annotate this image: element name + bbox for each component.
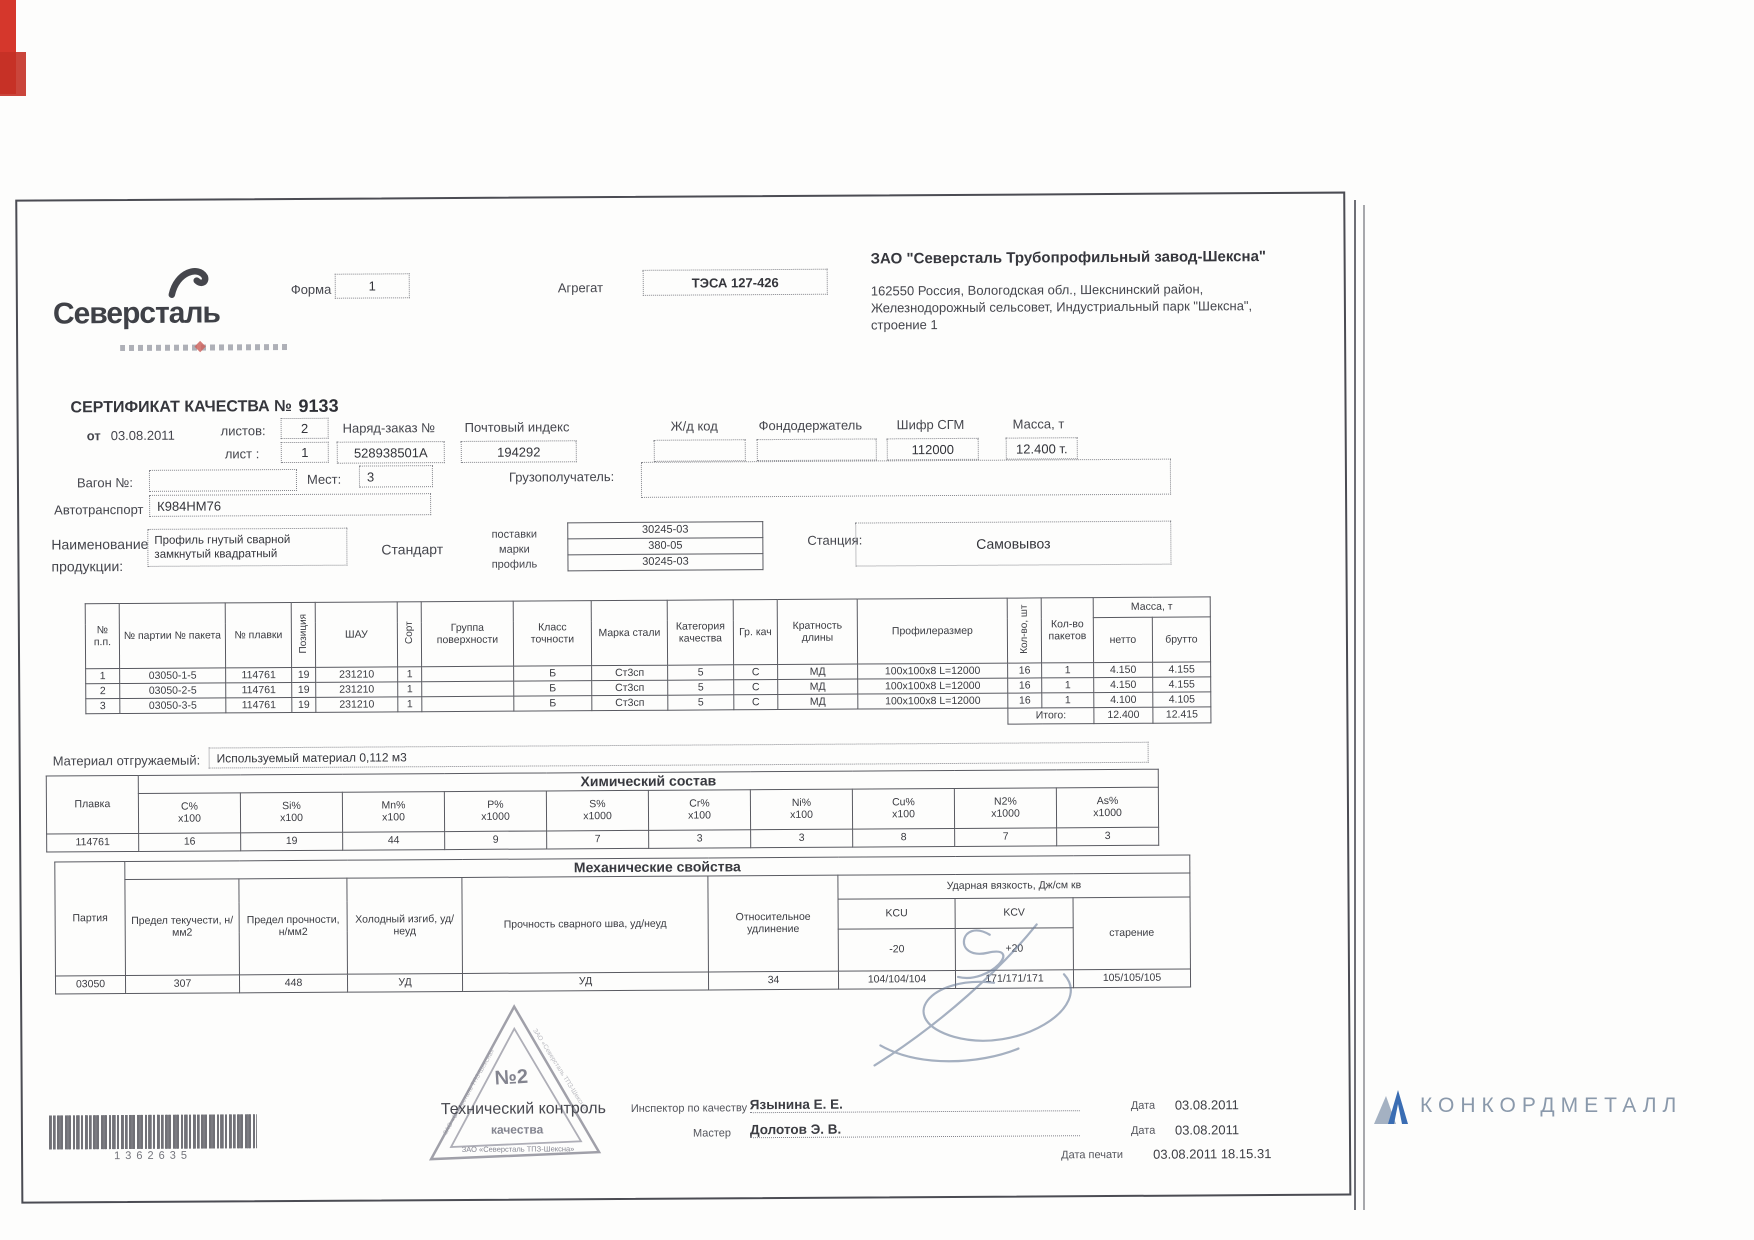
- cell: 3: [649, 829, 751, 848]
- chem-col-P: P%х1000: [444, 790, 546, 831]
- cell: 03050-2-5: [120, 683, 226, 699]
- cell: 16: [1008, 693, 1042, 708]
- cell: 16: [1008, 663, 1042, 678]
- cell: 1: [86, 669, 120, 684]
- cell: 03050-1-5: [120, 668, 226, 684]
- cell: 5: [668, 680, 734, 695]
- document-body: Северсталь Форма 1 Агрегат ТЭСА 127-426 …: [0, 0, 1754, 1240]
- cell: 4.155: [1153, 662, 1211, 677]
- sgm-value-box: 112000: [887, 438, 979, 461]
- cell: 44: [343, 831, 445, 850]
- standard-row-label-profile: профиль: [471, 557, 557, 573]
- cell: 3: [751, 829, 853, 848]
- stamp-ring-text-bottom: ЗАО «Северсталь ТПЗ-Шексна»: [441, 1144, 595, 1154]
- cell: 5: [668, 665, 734, 680]
- product-value-box: Профиль гнутый сварной замкнутый квадрат…: [147, 528, 347, 567]
- sgm-label: Шифр СГМ: [897, 417, 965, 432]
- cell: 448: [239, 974, 347, 993]
- cell: 4.155: [1153, 677, 1211, 692]
- barcode-bars: [49, 1114, 257, 1149]
- col-header-batch: № партии № пакета: [119, 603, 225, 669]
- cell: 5: [668, 695, 734, 710]
- cell: 19: [292, 697, 316, 712]
- chem-col-C: C%х100: [138, 792, 240, 833]
- consignee-label: Грузополучатель:: [509, 469, 614, 485]
- cell: Ст3сп: [592, 665, 668, 680]
- cell: 231210: [316, 667, 398, 683]
- date-label-1: Дата: [1131, 1100, 1155, 1112]
- aggregate-label: Агрегат: [558, 280, 603, 295]
- company-address-line3: строение 1: [871, 314, 1252, 333]
- stamp-caption-line2: качества: [491, 1122, 543, 1136]
- fundholder-label: Фондодержатель: [759, 418, 863, 434]
- cell: 1: [1042, 693, 1094, 708]
- standard-row-label-delivery: поставки: [471, 527, 557, 543]
- cell: 16: [139, 832, 241, 851]
- chem-col-S: S%х1000: [546, 790, 648, 831]
- material-label: Материал отгружаемый:: [53, 753, 201, 769]
- cell: 1: [1042, 663, 1094, 678]
- cell: Б: [514, 696, 592, 711]
- handwritten-signature: [832, 912, 1133, 1094]
- cell: 231210: [316, 697, 398, 713]
- col-header-position: Позиция: [291, 602, 315, 667]
- cell: 3: [1057, 827, 1159, 846]
- print-date-label: Дата печати: [1061, 1149, 1123, 1161]
- cell: 8: [853, 828, 955, 847]
- stamp-caption-line1: Технический контроль: [441, 1100, 606, 1119]
- chem-col-Cr: Cr%х100: [648, 789, 750, 830]
- cell: 16: [1008, 678, 1042, 693]
- sheets-value-box: 2: [281, 418, 329, 439]
- barcode-number: 1362635: [49, 1149, 257, 1162]
- company-address-line2: Железнодорожный сельсовет, Индустриальны…: [871, 297, 1252, 316]
- date-value: 03.08.2011: [111, 428, 175, 443]
- date-label-2: Дата: [1131, 1125, 1155, 1137]
- cell: МД: [778, 694, 858, 709]
- cell: [422, 681, 514, 697]
- railcode-value-box: [654, 439, 746, 462]
- mechanics-party-value: 03050: [55, 975, 125, 993]
- cell: Б: [514, 666, 592, 681]
- sheet-value-box: 1: [281, 442, 329, 463]
- order-value-box: 528938501А: [337, 441, 445, 464]
- product-label-line1: Наименование: [51, 536, 148, 553]
- cell: 03050-3-5: [120, 698, 226, 714]
- chemistry-melt-value: 114761: [47, 833, 139, 852]
- chem-col-As: As%х1000: [1056, 787, 1158, 828]
- col-header-shau: ШАУ: [315, 602, 397, 667]
- aggregate-value-box: ТЭСА 127-426: [643, 269, 828, 296]
- cell: 19: [241, 832, 343, 851]
- cell: 1: [1042, 678, 1094, 693]
- cell: 2: [86, 684, 120, 699]
- cell: 100х100х8 L=12000: [858, 693, 1008, 709]
- certificate-title: СЕРТИФИКАТ КАЧЕСТВА №: [70, 398, 292, 417]
- col-header-gross: брутто: [1152, 617, 1210, 662]
- col-header-surface-group: Группа поверхности: [421, 601, 513, 667]
- company-address: 162550 Россия, Вологодская обл., Шекснин…: [871, 280, 1253, 333]
- cell: 114761: [226, 668, 292, 683]
- cell: 9: [445, 830, 547, 849]
- cell: 1: [398, 697, 422, 712]
- consignee-value-box: [641, 459, 1171, 498]
- col-header-sort: Сорт: [397, 602, 421, 667]
- standard-row-label-grade: марки: [471, 542, 557, 558]
- standard-label: Стандарт: [381, 541, 443, 557]
- cell: 7: [547, 830, 649, 849]
- order-label: Наряд-заказ №: [343, 420, 436, 436]
- col-header-melt: № плавки: [225, 603, 291, 668]
- inspector-name: Язынина Е. Е.: [750, 1095, 1080, 1113]
- logo-tagline: [120, 344, 288, 351]
- date-value-2: 03.08.2011: [1175, 1122, 1239, 1137]
- product-value-line1: Профиль гнутый сварной: [154, 533, 290, 548]
- scanned-quality-certificate: Северсталь Форма 1 Агрегат ТЭСА 127-426 …: [0, 0, 1754, 1240]
- cell: Ст3сп: [592, 695, 668, 710]
- cell: МД: [778, 664, 858, 679]
- cell: МД: [778, 679, 858, 694]
- places-value-box: 3: [359, 465, 433, 487]
- col-header-quality-group: Гр. кач: [733, 600, 777, 665]
- cell: 19: [292, 682, 316, 697]
- standard-row-labels: поставки марки профиль: [471, 527, 557, 573]
- cell: 4.100: [1094, 692, 1153, 707]
- standard-value-profile: 30245-03: [568, 554, 763, 571]
- station-value-box: Самовывоз: [855, 521, 1171, 567]
- col-header-qty-pcs: Кол-во, шт: [1007, 598, 1041, 663]
- wagon-value-box: [149, 469, 297, 492]
- products-table: № п.п. № партии № пакета № плавки Позици…: [85, 596, 1212, 730]
- postcode-label: Почтовый индекс: [465, 419, 570, 435]
- master-name: Долотов Э. В.: [750, 1120, 1080, 1138]
- sheet-label: лист :: [225, 446, 260, 461]
- col-header-net: нетто: [1093, 617, 1152, 662]
- product-label-line2: продукции:: [51, 558, 123, 574]
- concord-metal-logo-icon: [1372, 1086, 1412, 1131]
- cell: Ст3сп: [592, 680, 668, 695]
- station-label: Станция:: [807, 533, 862, 548]
- inspector-label: Инспектор по качеству: [631, 1102, 747, 1115]
- sheets-label: листов:: [221, 423, 266, 438]
- totals-label: Итого:: [1008, 708, 1094, 725]
- company-name: ЗАО "Северсталь Трубопрофильный завод-Ше…: [871, 248, 1266, 267]
- cell: 1: [398, 667, 422, 682]
- chem-col-Mn: Mn%х100: [342, 791, 444, 832]
- form-label: Форма: [291, 282, 332, 297]
- cell: 4.105: [1153, 692, 1211, 707]
- chem-col-Ni: Ni%х100: [750, 789, 852, 830]
- cell: 1: [398, 682, 422, 697]
- col-header-length-multiplicity: Кратность длины: [777, 599, 857, 664]
- mass-label: Масса, т: [1013, 416, 1065, 431]
- cell: 100х100х8 L=12000: [858, 663, 1008, 679]
- concord-metal-brand-text: КОНКОРДМЕТАЛЛ: [1420, 1094, 1682, 1118]
- date-value-1: 03.08.2011: [1175, 1097, 1239, 1112]
- mech-col-yield: Предел текучести, н/мм2: [125, 878, 240, 975]
- fundholder-value-box: [757, 438, 877, 461]
- mass-value-box: 12.400 т.: [1006, 437, 1078, 459]
- mech-col-strength: Предел прочности, н/мм2: [239, 878, 348, 975]
- stamp-number: №2: [494, 1066, 529, 1091]
- mech-col-elongation: Относительное удлинение: [708, 875, 839, 972]
- cell: 307: [125, 974, 239, 993]
- chemistry-table: Плавка Химический состав C%х100 Si%х100 …: [46, 769, 1160, 852]
- cell: 4.150: [1094, 677, 1153, 692]
- chem-col-Cu: Cu%х100: [852, 788, 954, 829]
- date-label: от: [87, 428, 101, 443]
- mech-col-cold-bend: Холодный изгиб, уд/неуд: [347, 877, 463, 974]
- cell: [422, 696, 514, 712]
- product-value-line2: замкнутый квадратный: [154, 547, 277, 562]
- cell: С: [734, 695, 778, 710]
- cell: 114761: [226, 683, 292, 698]
- print-date-value: 03.08.2011 18.15.31: [1153, 1146, 1271, 1162]
- cell: УД: [347, 973, 462, 992]
- totals-net: 12.400: [1094, 707, 1153, 723]
- places-label: Мест:: [307, 472, 341, 487]
- standard-value-delivery: 30245-03: [568, 522, 763, 539]
- cell: С: [734, 665, 778, 680]
- col-header-quality-category: Категория качества: [667, 600, 733, 665]
- chemistry-melt-header: Плавка: [46, 775, 138, 833]
- cell: 4.150: [1094, 662, 1153, 677]
- wagon-label: Вагон №:: [77, 475, 133, 490]
- cell: Б: [514, 681, 592, 696]
- cell: 19: [292, 667, 316, 682]
- barcode: 1362635: [49, 1114, 257, 1162]
- col-header-accuracy-class: Класс точности: [513, 601, 591, 666]
- cell: С: [734, 680, 778, 695]
- cell: 7: [955, 827, 1057, 846]
- chem-col-N2: N2%х1000: [954, 787, 1056, 828]
- postcode-value-box: 194292: [461, 440, 577, 463]
- chem-col-Si: Si%х100: [240, 792, 342, 833]
- mech-col-weld: Прочность сварного шва, уд/неуд: [462, 875, 709, 973]
- mechanics-party-header: Партия: [55, 862, 126, 976]
- totals-gross: 12.415: [1153, 707, 1211, 723]
- cell: 231210: [316, 682, 398, 698]
- certificate-number: 9133: [298, 396, 338, 417]
- severstal-logo-text: Северсталь: [53, 296, 220, 331]
- cell: 3: [86, 699, 120, 714]
- cell: [422, 666, 514, 682]
- cell: 114761: [226, 698, 292, 713]
- standard-value-grade: 380-05: [568, 538, 763, 555]
- railcode-label: Ж/д код: [671, 418, 718, 433]
- truck-value-box: К984НМ76: [149, 493, 431, 517]
- master-label: Мастер: [693, 1127, 731, 1139]
- truck-label: Автотранспорт: [54, 502, 143, 518]
- col-header-qty-packs: Кол-во пакетов: [1041, 598, 1093, 663]
- col-header-num: № п.п.: [85, 604, 119, 669]
- standard-values-table: 30245-03 380-05 30245-03: [567, 521, 763, 571]
- cell: УД: [462, 971, 708, 991]
- form-value-box: 1: [335, 273, 410, 298]
- col-header-mass: Масса, т: [1093, 597, 1210, 618]
- quality-control-stamp: №2 ЗАО «Северсталь ТПЗ-Шексна» ЗАО «Севе…: [422, 1000, 613, 1171]
- mech-col-impact: Ударная вязкость, Дж/см кв: [838, 873, 1190, 899]
- col-header-profile-size: Профилеразмер: [857, 598, 1007, 664]
- col-header-steel-grade: Марка стали: [591, 600, 667, 665]
- cell: 34: [708, 971, 838, 990]
- cell: 100х100х8 L=12000: [858, 678, 1008, 694]
